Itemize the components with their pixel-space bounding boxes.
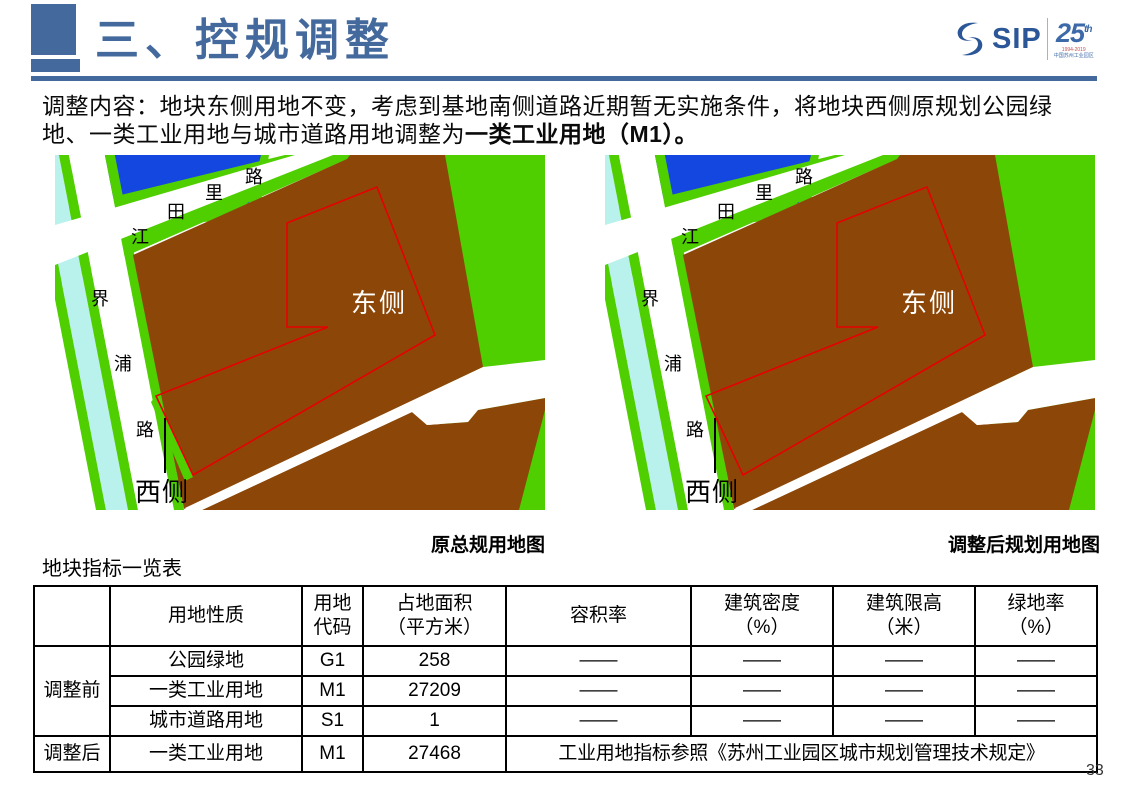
cell-area: 27209 — [363, 676, 506, 706]
west-side-label: 西侧 — [685, 477, 739, 507]
header-landuse-nature: 用地性质 — [110, 586, 302, 646]
sip-logo: SIP 25th 1994-2019 中国苏州工业园区 — [950, 12, 1100, 66]
road-b-char: 界 — [641, 289, 659, 309]
page-number: 33 — [1086, 762, 1104, 780]
road-a-char: 里 — [755, 183, 773, 203]
road-b-char: 路 — [686, 420, 704, 440]
road-a-char: 里 — [205, 183, 223, 203]
east-side-label: 东侧 — [901, 288, 957, 318]
cell-area: 258 — [363, 646, 506, 676]
header-landuse-code: 用地代码 — [302, 586, 363, 646]
cell-nature: 一类工业用地 — [110, 736, 302, 772]
anniversary-years: 1994-2019 — [1062, 48, 1086, 53]
cell-density: —— — [691, 646, 833, 676]
road-b-char: 浦 — [114, 354, 132, 374]
anniversary-tagline: 中国苏州工业园区 — [1054, 54, 1094, 59]
cell-greenrate: —— — [975, 676, 1097, 706]
road-b-char: 界 — [91, 289, 109, 309]
cell-far: —— — [506, 676, 691, 706]
cell-height: —— — [833, 676, 975, 706]
cell-code: M1 — [302, 676, 363, 706]
east-side-label: 东侧 — [351, 288, 407, 318]
road-a-char: 田 — [717, 202, 735, 222]
road-b-char: 路 — [136, 420, 154, 440]
original-landuse-map: 江 田 里 路 界 浦 路 东侧 西侧 — [55, 155, 545, 510]
group-after-adjustment: 调整后 — [34, 736, 110, 772]
cell-code: M1 — [302, 736, 363, 772]
table-row-after-adjustment: 调整后 一类工业用地 M1 27468 工业用地指标参照《苏州工业园区城市规划管… — [34, 736, 1097, 772]
intro-line2-bold: 一类工业用地（M1）。 — [465, 121, 698, 147]
plot-indicators-table: 用地性质 用地代码 占地面积（平方米） 容积率 建筑密度（%） 建筑限高（米） … — [33, 585, 1098, 773]
group-before-adjustment: 调整前 — [34, 646, 110, 736]
cell-nature: 公园绿地 — [110, 646, 302, 676]
intro-line1: 调整内容：地块东侧用地不变，考虑到基地南侧道路近期暂无实施条件，将地块西侧原规划… — [42, 93, 1053, 119]
cell-height: —— — [833, 706, 975, 736]
cell-density: —— — [691, 706, 833, 736]
adjusted-landuse-map: 江 田 里 路 界 浦 路 东侧 西侧 — [605, 155, 1095, 510]
cell-height: —— — [833, 646, 975, 676]
cell-far: —— — [506, 706, 691, 736]
cell-area-adjusted: 27468 — [363, 736, 506, 772]
sip-logo-text: SIP — [992, 23, 1042, 56]
road-a-char: 路 — [245, 167, 263, 187]
anniversary-25: 25th — [1056, 20, 1092, 47]
header-height-limit: 建筑限高（米） — [833, 586, 975, 646]
cell-reference-note: 工业用地指标参照《苏州工业园区城市规划管理技术规定》 — [506, 736, 1097, 772]
road-b-char: 浦 — [664, 354, 682, 374]
header-divider-line — [31, 76, 1097, 81]
intro-line2-regular: 地、一类工业用地与城市道路用地调整为 — [42, 121, 465, 147]
slide: { "header": { "title": "三、控规调整", "logo":… — [0, 0, 1123, 794]
sip-swoosh-icon — [950, 19, 990, 59]
table-title: 地块指标一览表 — [42, 552, 182, 581]
cell-greenrate: —— — [975, 706, 1097, 736]
road-a-char: 路 — [795, 167, 813, 187]
cell-nature: 一类工业用地 — [110, 676, 302, 706]
cell-area: 1 — [363, 706, 506, 736]
road-a-char: 田 — [167, 202, 185, 222]
west-side-label: 西侧 — [135, 477, 189, 507]
cell-code: G1 — [302, 646, 363, 676]
table-row: 一类工业用地 M1 27209 —— —— —— —— — [34, 676, 1097, 706]
header-green-rate: 绿地率（%） — [975, 586, 1097, 646]
page-title: 三、控规调整 — [95, 4, 395, 68]
cell-density: —— — [691, 676, 833, 706]
title-accent-square — [31, 4, 76, 55]
logo-divider — [1047, 18, 1048, 60]
table-header-row: 用地性质 用地代码 占地面积（平方米） 容积率 建筑密度（%） 建筑限高（米） … — [34, 586, 1097, 646]
table-row: 城市道路用地 S1 1 —— —— —— —— — [34, 706, 1097, 736]
right-map-caption: 调整后规划用地图 — [605, 530, 1100, 557]
cell-nature: 城市道路用地 — [110, 706, 302, 736]
title-accent-bar — [31, 59, 80, 72]
header-far: 容积率 — [506, 586, 691, 646]
anniversary-mark: 25th 1994-2019 中国苏州工业园区 — [1054, 20, 1094, 59]
adjustment-description: 调整内容：地块东侧用地不变，考虑到基地南侧道路近期暂无实施条件，将地块西侧原规划… — [42, 92, 1102, 148]
road-a-char: 江 — [681, 227, 699, 247]
cell-greenrate: —— — [975, 646, 1097, 676]
header-area: 占地面积（平方米） — [363, 586, 506, 646]
road-a-char: 江 — [131, 227, 149, 247]
header-group — [34, 586, 110, 646]
header-building-density: 建筑密度（%） — [691, 586, 833, 646]
cell-code: S1 — [302, 706, 363, 736]
cell-far: —— — [506, 646, 691, 676]
table-row: 调整前 公园绿地 G1 258 —— —— —— —— — [34, 646, 1097, 676]
